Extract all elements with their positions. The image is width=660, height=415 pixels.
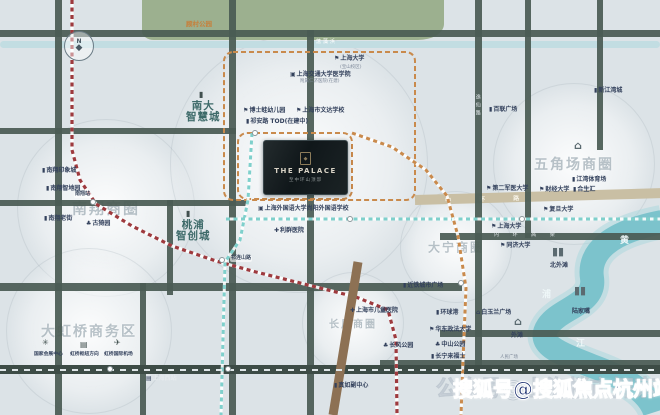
map-label-text: 虹桥枢纽方向 (70, 352, 99, 358)
map-label: ▤ (80, 341, 88, 349)
map-label-text: 内 环 高 架 (494, 233, 561, 239)
map-label-text: 长风公园 (389, 343, 413, 350)
map-label-text: 南翔印象城 (46, 168, 76, 175)
map-label: 虹桥国际机场 (104, 352, 133, 358)
map-label: ⌂白玉兰广场 (476, 310, 511, 317)
map-label-text: 上海大学 (497, 224, 521, 231)
map-label-text: 上海外国语大学尚阳外国语学校 (265, 206, 349, 213)
map-label-text: 上海市文达学校 (302, 108, 344, 115)
tower-icon: ⌂ (514, 316, 522, 327)
map-label: 人民广场 (500, 355, 518, 360)
map-label: ▮环球港 (436, 310, 458, 317)
map-label: 黄 (620, 236, 629, 246)
map-label-text: 外滩 (511, 333, 523, 340)
map-label-text: 古猗园 (92, 221, 110, 228)
location-map: 中 环 路 ◆ THE PALACE 至中环山顶邸 N ◆ 公众号@上海楼市探索… (0, 0, 660, 415)
building-icon: ▮ (573, 187, 576, 193)
map-label: ⚑上海大学 (334, 56, 364, 63)
map-label: ⚑上海大学 (491, 224, 521, 231)
map-label-text: 新江湾城 (598, 88, 622, 95)
map-label: 国家会展中心 (34, 352, 63, 358)
map-label: ✳ (42, 339, 49, 347)
map-label-text: 白玉兰广场 (481, 310, 511, 317)
map-label: ⚑同济大学 (500, 243, 530, 250)
metro-line-15-casing (221, 133, 252, 415)
map-label-text: 江湾体育场 (576, 177, 606, 184)
metro-station-dot (219, 257, 225, 263)
map-label: ▮▮ (574, 285, 586, 296)
map-label: 浦 (542, 290, 551, 300)
map-label: 桃浦 智创城 (176, 220, 211, 243)
school-icon: ▣ (290, 72, 296, 78)
map-label-text: 利群医院 (280, 228, 304, 235)
building-icon: ▮ (42, 168, 45, 174)
map-label: (宝山校区) (340, 65, 362, 70)
flag-icon: ⚑ (543, 207, 548, 213)
map-label: ▮江湾体育场 (572, 177, 606, 184)
map-label-text: 陆家嘴 (572, 309, 590, 316)
building-icon: ▮ (436, 310, 439, 316)
train-icon: ▤ (80, 341, 88, 349)
map-label: ▮ (199, 91, 203, 99)
building-icon: ▮ (46, 186, 49, 192)
map-label: ▮百联广场 (489, 107, 517, 114)
map-label-text: 上海大学 (340, 56, 364, 63)
map-label-text: 华东政法大学 (435, 327, 471, 334)
map-label-text: 环球港 (440, 310, 458, 317)
map-label-text: 祁连山路 (231, 256, 251, 262)
map-label: ▣上海交通大学医学院 (290, 72, 351, 79)
flag-icon: ⚑ (429, 327, 434, 333)
map-label-text: 财经大学 (545, 187, 569, 194)
map-label-text: 人民广场 (500, 355, 518, 360)
map-label: ✈ (114, 339, 121, 347)
map-label: ⚑上海市文达学校 (296, 108, 344, 115)
metro-station-dot (519, 216, 525, 222)
map-label: ▮南翔智地园 (46, 186, 80, 193)
map-label: 虹桥枢纽方向 (70, 352, 99, 358)
compass-needle-icon: ◆ (76, 44, 83, 53)
map-label: ▮南翔老街 (44, 216, 72, 223)
building-icon: ▮ (431, 354, 434, 360)
tree-icon: ♣ (435, 342, 440, 348)
map-label: ▮祁安路 TOD(在建中) (246, 119, 308, 126)
metro-station-dot (90, 199, 96, 205)
map-label: ▮真如副中心 (334, 383, 368, 390)
map-label: 内 环 高 架 (494, 233, 561, 239)
map-label: 外滩 (511, 333, 523, 340)
map-label-text: 祁安路 TOD(在建中) (250, 119, 308, 126)
metro-station-dot (225, 366, 231, 372)
map-label: 蕰藻浜 (316, 40, 337, 46)
flag-icon: ⚑ (539, 187, 544, 193)
map-label-text: 近铁城市广场 (407, 283, 443, 290)
map-label: 陆家嘴 (572, 309, 590, 316)
building-icon: ▮ (334, 383, 337, 389)
building-icon: ▮ (44, 216, 47, 222)
map-label: ⚑博士蛙幼儿园 (243, 108, 285, 115)
project-name: THE PALACE (274, 167, 337, 175)
building-icon: ▮ (489, 107, 492, 113)
expo-icon: ✳ (42, 339, 49, 347)
map-label: 江 (576, 339, 585, 349)
map-label-text: 虹桥国际机场 (104, 352, 133, 358)
map-label-text: 南翔智地园 (50, 186, 80, 193)
tower-icon: ⌂ (574, 140, 582, 151)
map-label: ♣古猗园 (86, 221, 110, 228)
map-label: ✚利群医院 (274, 228, 304, 235)
map-label-text: 南大 智慧城 (186, 101, 221, 124)
building-icon: ▮ (186, 210, 190, 218)
map-label-text: (宝山校区) (340, 65, 362, 70)
flag-icon: ⚑ (334, 56, 339, 62)
project-emblem-icon: ◆ (300, 152, 311, 165)
metro-station-dot (107, 366, 113, 372)
building-icon: ▮ (403, 283, 406, 289)
map-label-text: 桃浦 智创城 (176, 220, 211, 243)
project-card: ◆ THE PALACE 至中环山顶邸 (263, 140, 348, 195)
map-label-text: 南翔老街 (48, 216, 72, 223)
map-label: 附属仁济医院(在建) (300, 79, 340, 84)
school-icon: ▣ (258, 206, 264, 212)
map-label: ▮长宁来福士 (431, 354, 465, 361)
tree-icon: ♣ (383, 343, 388, 349)
building-icon: ▮ (594, 88, 597, 94)
map-label: ▮近铁城市广场 (403, 283, 443, 290)
map-label-text: 中山公园 (441, 342, 465, 349)
building-icon: ▮ (246, 119, 249, 125)
flag-icon: ⚑ (491, 224, 496, 230)
map-label: ⌂ (514, 316, 522, 327)
map-label-text: 北外滩 (550, 263, 568, 270)
flag-icon: ⚑ (296, 108, 301, 114)
flag-icon: ⚑ (243, 108, 248, 114)
hospital-icon: ✚ (350, 308, 355, 314)
map-label: 南大 智慧城 (186, 101, 221, 124)
flag-icon: ⚑ (500, 243, 505, 249)
map-label-text: 长宁来福士 (435, 354, 465, 361)
map-label: 祁连山路 (230, 256, 252, 262)
map-label-text: 国家会展中心 (34, 352, 63, 358)
tower-icon: ⌂ (476, 310, 480, 316)
map-label: 北外滩 (550, 263, 568, 270)
building-icon: ▮ (199, 91, 203, 99)
twin-towers-icon: ▮▮ (574, 285, 586, 296)
map-label-text: 百联广场 (493, 107, 517, 114)
plane-icon: ✈ (114, 339, 121, 347)
map-label: ⚑第二军医大学 (486, 186, 528, 193)
map-label-text: 附属仁济医院(在建) (300, 79, 340, 84)
map-label: ▮新江湾城 (594, 88, 622, 95)
building-icon: ▮ (572, 177, 575, 183)
map-label-text: 浦 (542, 290, 551, 300)
north-south-elevated-road (333, 262, 358, 415)
map-label-text: 黄 (620, 236, 629, 246)
map-label-text: 江 (576, 339, 585, 349)
map-label-text: 逸仙路 (474, 94, 480, 118)
map-label: ▤上海西站 (146, 376, 177, 383)
map-label: 逸仙路 (474, 94, 480, 118)
map-label: 顾村公园 (186, 21, 212, 28)
map-label-text: 真如副中心 (338, 383, 368, 390)
map-label: ▮南翔印象城 (42, 168, 76, 175)
metro-station-dot (347, 216, 353, 222)
train-icon: ▤ (146, 376, 152, 382)
map-label-text: 第二军医大学 (492, 186, 528, 193)
map-label: ✚上海市儿童医院 (350, 308, 398, 315)
map-label: ⚑财经大学 (539, 187, 569, 194)
map-label: ⚑复旦大学 (543, 207, 573, 214)
watermark-sohu: 搜狐号@搜狐焦点杭州站 (453, 373, 660, 402)
map-label-text: 上海市儿童医院 (356, 308, 398, 315)
map-label-text: 顾村公园 (186, 21, 212, 28)
tree-icon: ♣ (86, 221, 91, 227)
project-subtitle: 至中环山顶邸 (289, 177, 322, 183)
map-label-text: 上海西站 (153, 376, 177, 383)
map-label: ▮▮ (552, 246, 564, 257)
map-label: ▮合生汇 (573, 187, 595, 194)
map-label-text: 同济大学 (506, 243, 530, 250)
hospital-icon: ✚ (274, 228, 279, 234)
map-label-text: 蕰藻浜 (316, 40, 337, 46)
compass-icon: N ◆ (64, 31, 94, 61)
map-label-text: 博士蛙幼儿园 (249, 108, 285, 115)
metro-station-dot (458, 280, 464, 286)
map-label: ⚑华东政法大学 (429, 327, 471, 334)
twin-towers-icon: ▮▮ (552, 246, 564, 257)
flag-icon: ⚑ (486, 186, 491, 192)
map-label: ⌂ (574, 140, 582, 151)
map-label-text: 合生汇 (577, 187, 595, 194)
map-label: ♣中山公园 (435, 342, 465, 349)
metro-station-dot (252, 130, 258, 136)
map-label: ♣长风公园 (383, 343, 413, 350)
map-label-text: 上海交通大学医学院 (297, 72, 351, 79)
map-label: ▮ (186, 210, 190, 218)
map-label: ▣上海外国语大学尚阳外国语学校 (258, 206, 349, 213)
map-label-text: 复旦大学 (549, 207, 573, 214)
